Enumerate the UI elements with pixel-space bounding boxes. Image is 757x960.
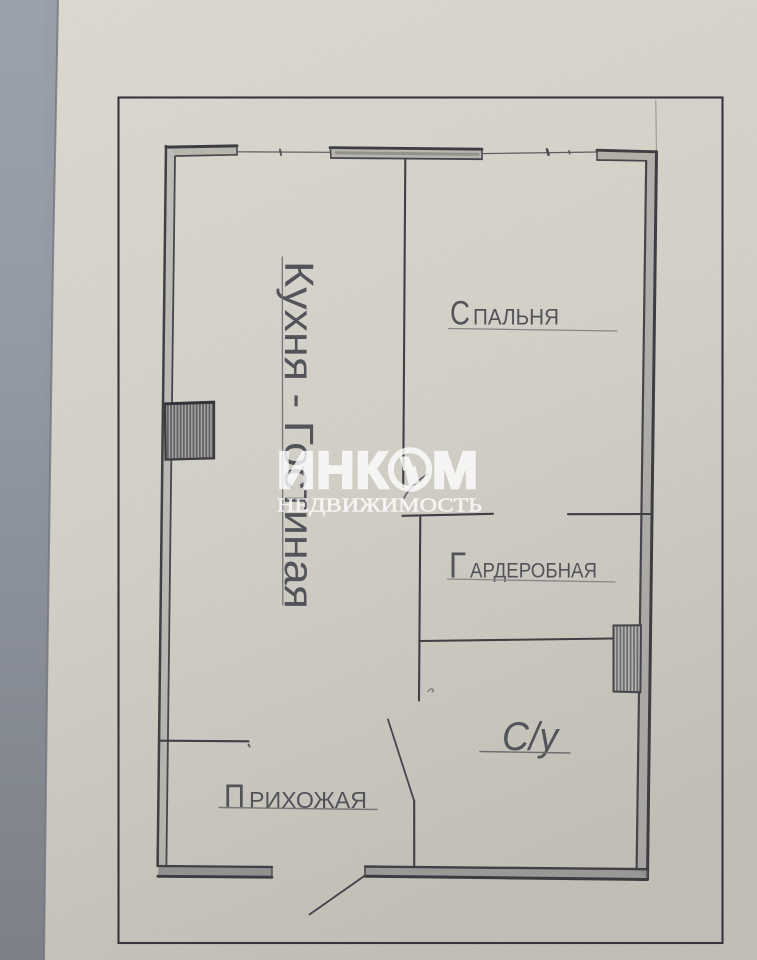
svg-text:П: П bbox=[224, 778, 245, 816]
svg-text:НЕДВИЖИМОСТЬ: НЕДВИЖИМОСТЬ bbox=[277, 496, 482, 517]
svg-text:ПАЛЬНЯ: ПАЛЬНЯ bbox=[473, 305, 559, 330]
svg-text:М: М bbox=[432, 442, 478, 500]
svg-text:АРДЕРОБНАЯ: АРДЕРОБНАЯ bbox=[470, 560, 597, 583]
svg-text:ИНК: ИНК bbox=[277, 442, 389, 500]
svg-text:С: С bbox=[450, 295, 470, 333]
